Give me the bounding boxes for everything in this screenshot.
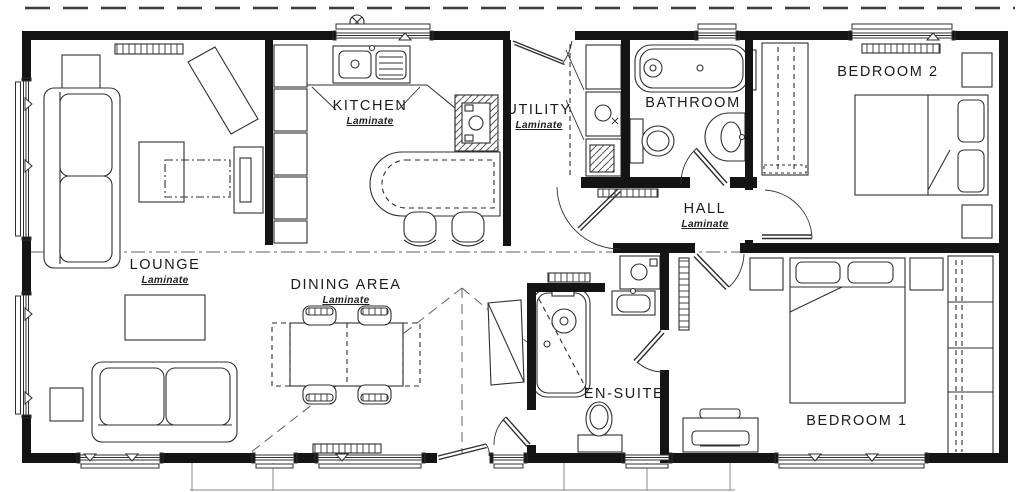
dining-window — [315, 453, 425, 468]
angled-cabinet — [188, 47, 258, 134]
ensuite-window — [622, 453, 672, 468]
hall-fixtures — [620, 256, 660, 289]
pillow — [848, 262, 893, 283]
bedroom1-door — [694, 254, 744, 290]
drain-icon — [697, 65, 703, 71]
kitchen-lounge-wall — [265, 40, 273, 245]
bedside-table — [962, 205, 992, 238]
bedside-table — [910, 258, 943, 290]
console-table — [125, 295, 205, 340]
lounge-radiator — [115, 44, 183, 54]
breakfast-bar — [370, 152, 500, 216]
hall-radiator — [598, 189, 658, 197]
washing-machine — [586, 92, 621, 136]
bed-1 — [790, 258, 905, 403]
bathroom-toilet — [630, 119, 674, 163]
pillow — [958, 100, 984, 142]
dining-table — [272, 323, 420, 386]
sideboard — [488, 300, 524, 385]
ensuite-door — [634, 331, 664, 373]
pillow — [796, 262, 840, 283]
dining-fixtures — [272, 300, 524, 404]
floor-plan-drawing — [0, 0, 1024, 492]
kitchen-fixtures — [274, 15, 500, 246]
entrance-door — [438, 444, 489, 460]
kitchen-window — [333, 24, 433, 40]
floor-plan: LOUNGE Laminate KITCHEN Laminate DINING … — [0, 0, 1024, 492]
kitchen-utility-wall — [503, 40, 511, 246]
utility-back-door — [513, 41, 572, 65]
boiler-cupboard — [620, 256, 660, 289]
dining-radiator — [313, 444, 381, 453]
utility-bathroom-wall — [621, 40, 630, 188]
bedroom2-radiator — [862, 44, 940, 53]
bedroom-divider-wall — [740, 243, 1008, 253]
wardrobe-1 — [948, 256, 993, 458]
corner-table — [62, 55, 100, 92]
utility-cupboard — [586, 45, 621, 89]
ensuite-radiator — [548, 273, 590, 282]
bar-stools — [404, 212, 484, 246]
airing-cupboard — [762, 43, 808, 175]
ensuite-toilet — [578, 402, 622, 452]
ensuite-vanity-basin — [612, 289, 655, 316]
ensuite-dining-door — [494, 417, 530, 447]
tv-unit — [234, 147, 263, 213]
bed-2 — [855, 95, 988, 195]
ensuite-fixtures — [533, 289, 655, 453]
tap-icon — [631, 289, 636, 294]
bedroom1-radiator — [679, 258, 689, 330]
lounge-fixtures — [44, 47, 263, 442]
hob — [455, 95, 498, 151]
cupboard-swing-marks — [566, 50, 584, 140]
tumble-dryer — [586, 139, 621, 176]
bedroom2-fixtures — [762, 43, 992, 238]
bedside-table — [962, 53, 992, 87]
bathroom-basin — [705, 113, 745, 161]
pillow — [958, 150, 984, 192]
sofa-bottom — [92, 362, 237, 442]
bathroom-fixtures — [630, 45, 756, 163]
cabinet-swing-marks — [312, 87, 420, 110]
kitchen-cabinets — [274, 45, 307, 243]
tap-icon — [740, 135, 745, 140]
bedside-table — [750, 258, 783, 290]
sofa-left — [44, 88, 120, 268]
bedroom1-window — [775, 453, 928, 468]
bedroom2-door — [762, 190, 812, 239]
lounge-window-4 — [252, 453, 297, 468]
bathroom-window — [695, 24, 739, 40]
bath — [635, 45, 748, 92]
bathroom-bedroom2-wall — [745, 40, 753, 190]
dining-window-2 — [490, 453, 527, 468]
tap-icon — [370, 46, 375, 51]
utility-fixtures — [566, 44, 627, 176]
shower-bath — [533, 289, 590, 397]
kitchen-sink — [333, 46, 410, 84]
worktop-edge — [307, 85, 455, 160]
side-table — [50, 388, 83, 421]
chest-of-drawers — [683, 409, 758, 452]
bedroom2-window — [849, 24, 955, 40]
coffee-table — [139, 142, 184, 202]
